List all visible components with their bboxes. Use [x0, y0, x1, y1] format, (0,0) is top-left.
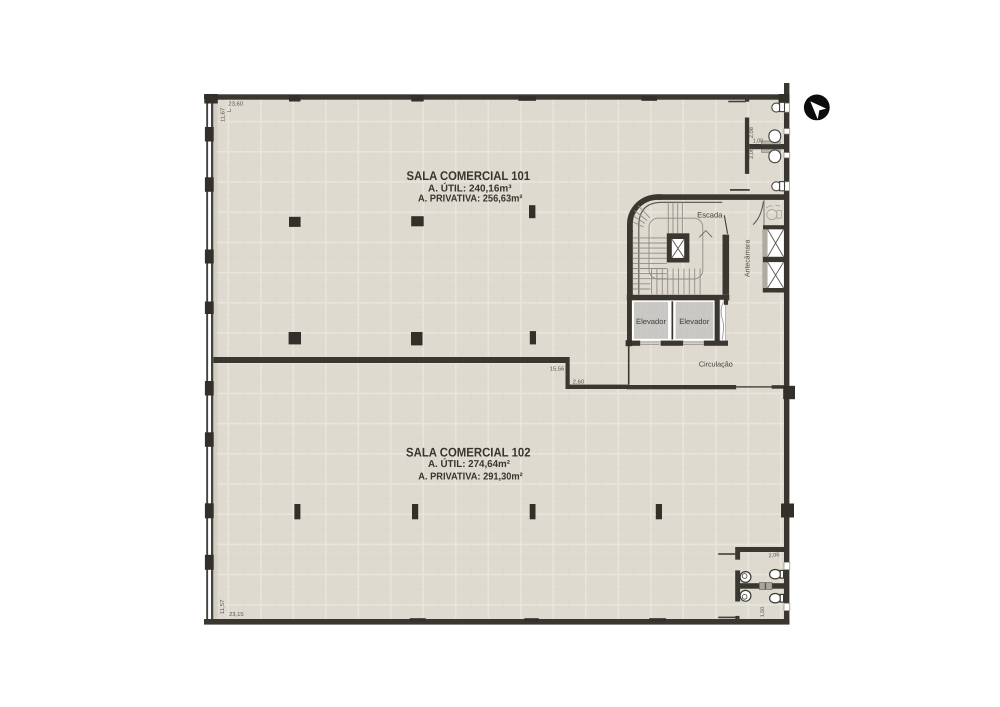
svg-text:Elevador: Elevador: [679, 317, 709, 326]
svg-text:2,60: 2,60: [573, 380, 585, 386]
svg-text:Circulação: Circulação: [699, 359, 733, 368]
svg-text:Escada: Escada: [697, 210, 723, 219]
svg-text:11,67: 11,67: [220, 108, 226, 123]
svg-text:11,57: 11,57: [220, 600, 226, 615]
svg-text:A. ÚTIL: 240,16m³: A. ÚTIL: 240,16m³: [428, 182, 512, 194]
svg-text:2,06: 2,06: [749, 148, 755, 159]
svg-text:Elevador: Elevador: [636, 317, 666, 326]
svg-text:SALA COMERCIAL 102: SALA COMERCIAL 102: [406, 446, 531, 460]
svg-text:A. PRIVATIVA: 256,63m²: A. PRIVATIVA: 256,63m²: [418, 194, 523, 205]
svg-text:15,56: 15,56: [550, 366, 565, 372]
svg-text:Antecâmara: Antecâmara: [743, 240, 751, 277]
svg-text:23,60: 23,60: [228, 102, 243, 108]
svg-text:A. ÚTIL: 274,64m²: A. ÚTIL: 274,64m²: [428, 458, 511, 470]
svg-text:A. PRIVATIVA: 291,30m²: A. PRIVATIVA: 291,30m²: [418, 472, 523, 483]
svg-text:1,50: 1,50: [760, 607, 766, 618]
svg-text:1,00: 1,00: [753, 139, 764, 145]
svg-text:23,15: 23,15: [229, 612, 244, 618]
svg-text:2,08: 2,08: [749, 127, 755, 138]
svg-text:SALA COMERCIAL 101: SALA COMERCIAL 101: [407, 169, 531, 183]
